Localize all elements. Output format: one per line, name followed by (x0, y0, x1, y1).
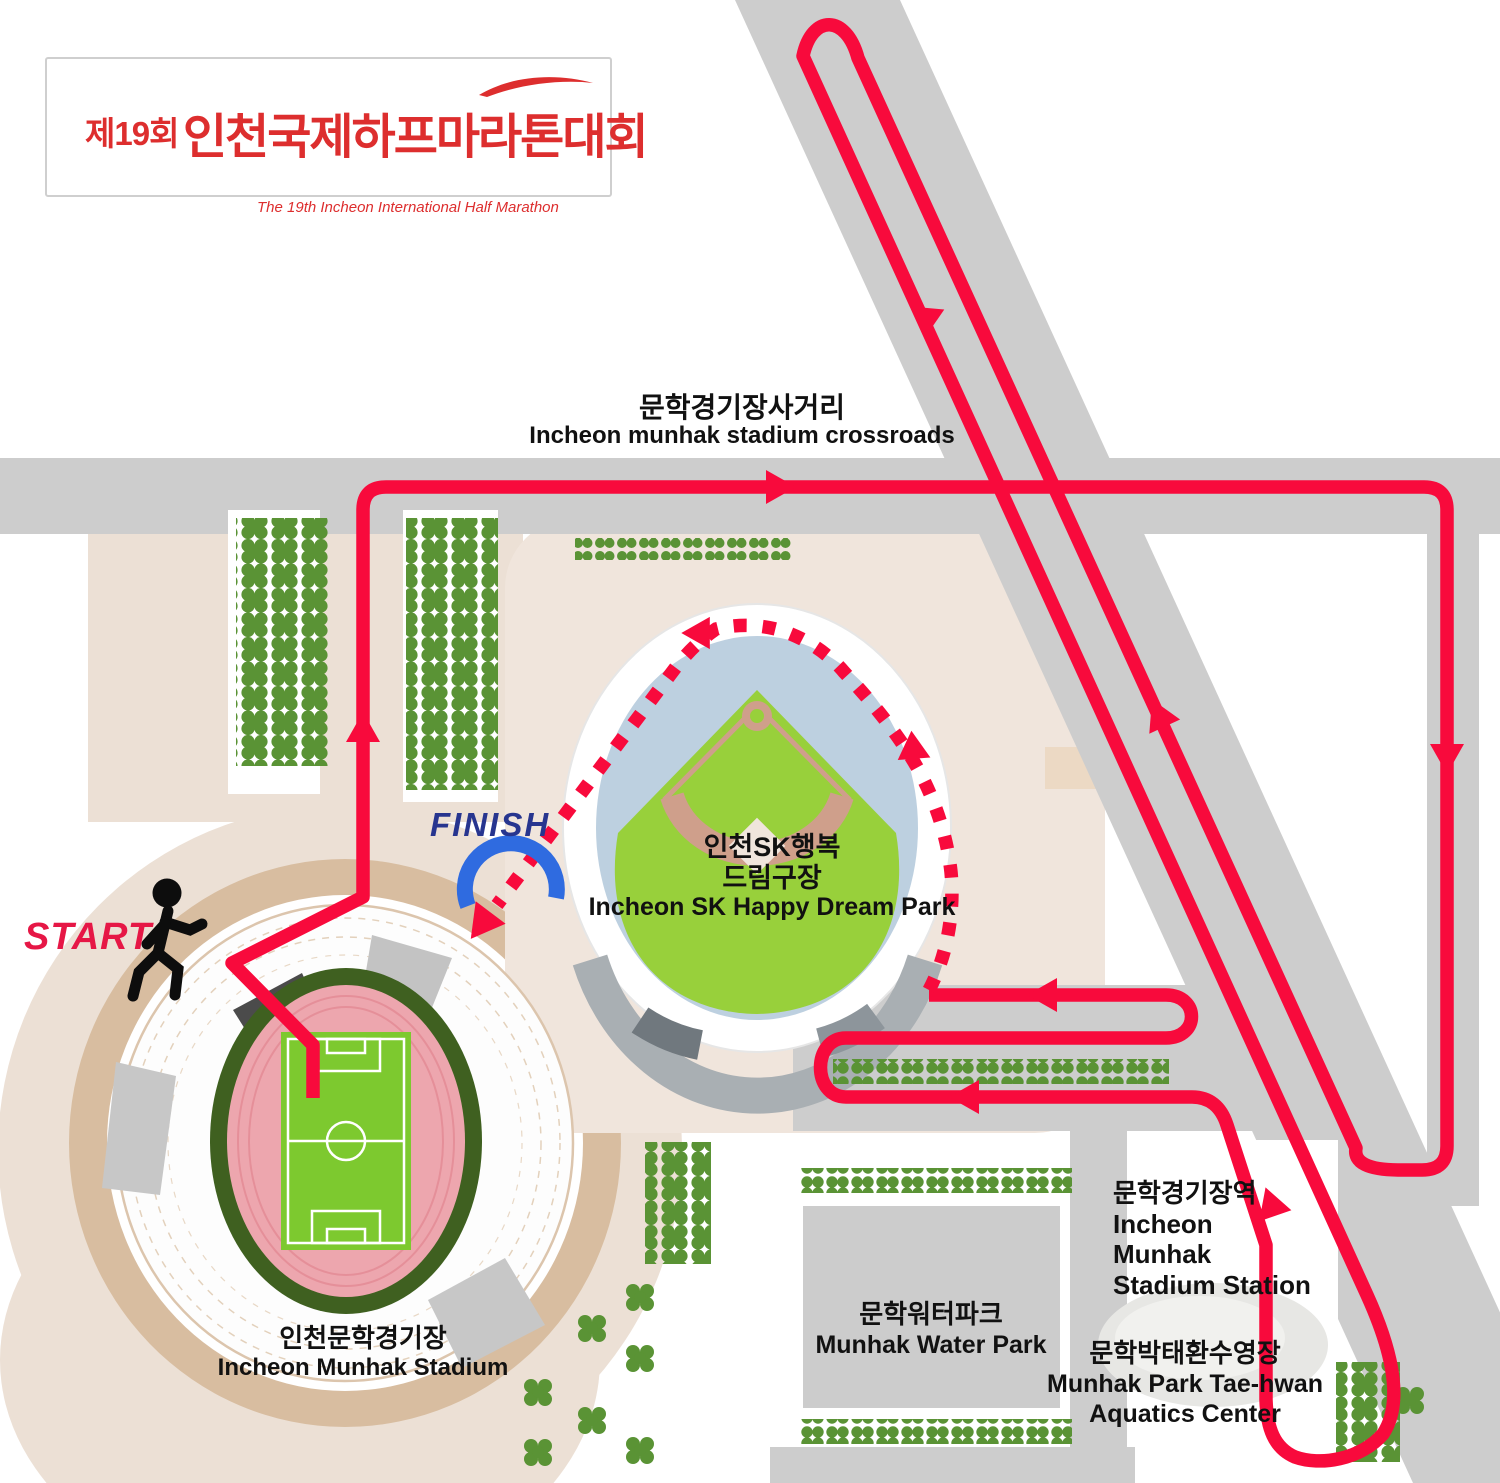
trees-midroad-row (833, 1059, 1169, 1084)
logo-swoosh-icon (477, 73, 597, 99)
label-stadium-station: 문학경기장역 Incheon Munhak Stadium Station (1113, 1178, 1311, 1301)
event-title-ko: 인천국제하프마라톤대회 (183, 111, 647, 164)
course-map: 제19회 인천국제하프마라톤대회 The 19th Incheon Intern… (0, 0, 1500, 1483)
label-aquatics-en2: Aquatics Center (1025, 1399, 1345, 1429)
trees-east-of-stadium (645, 1142, 711, 1264)
label-aquatics-en1: Munhak Park Tae-hwan (1025, 1369, 1345, 1399)
label-water-park-ko: 문학워터파크 (859, 1300, 1003, 1330)
trees-left-block-2 (406, 518, 498, 790)
trees-left-block-1 (236, 518, 328, 766)
finish-label: FINISH (430, 806, 550, 844)
label-dream-park-ko1: 인천SK행복 (704, 832, 841, 863)
event-logo: 제19회 인천국제하프마라톤대회 The 19th Incheon Intern… (45, 57, 612, 197)
label-stadium-station-en2: Munhak (1113, 1239, 1311, 1270)
label-munhak-stadium-en: Incheon Munhak Stadium (218, 1354, 509, 1382)
event-subtitle-en: The 19th Incheon International Half Mara… (257, 199, 559, 216)
label-stadium-station-en3: Stadium Station (1113, 1270, 1311, 1301)
bottom-road (770, 1447, 1135, 1483)
label-stadium-station-en1: Incheon (1113, 1209, 1311, 1240)
label-crossroads-en: Incheon munhak stadium crossroads (529, 422, 954, 450)
trees-above-waterpark (800, 1168, 1072, 1193)
label-aquatics-ko: 문학박태환수영장 (1025, 1338, 1345, 1369)
horizontal-road (0, 458, 1500, 534)
label-stadium-station-ko: 문학경기장역 (1113, 1178, 1311, 1209)
label-crossroads-ko: 문학경기장사거리 (639, 392, 845, 424)
soccer-pitch (281, 1032, 411, 1250)
label-dream-park-ko2: 드림구장 (722, 863, 821, 894)
event-edition: 제19회 (85, 115, 178, 152)
event-logo-title: 제19회 인천국제하프마라톤대회 (85, 97, 647, 167)
trees-top-row (575, 538, 793, 560)
label-water-park-en: Munhak Water Park (815, 1331, 1046, 1360)
label-munhak-stadium-ko: 인천문학경기장 (279, 1324, 446, 1354)
label-dream-park-en: Incheon SK Happy Dream Park (589, 893, 956, 922)
label-aquatics-center: 문학박태환수영장 Munhak Park Tae-hwan Aquatics C… (1025, 1338, 1345, 1429)
start-label: START (24, 916, 152, 959)
